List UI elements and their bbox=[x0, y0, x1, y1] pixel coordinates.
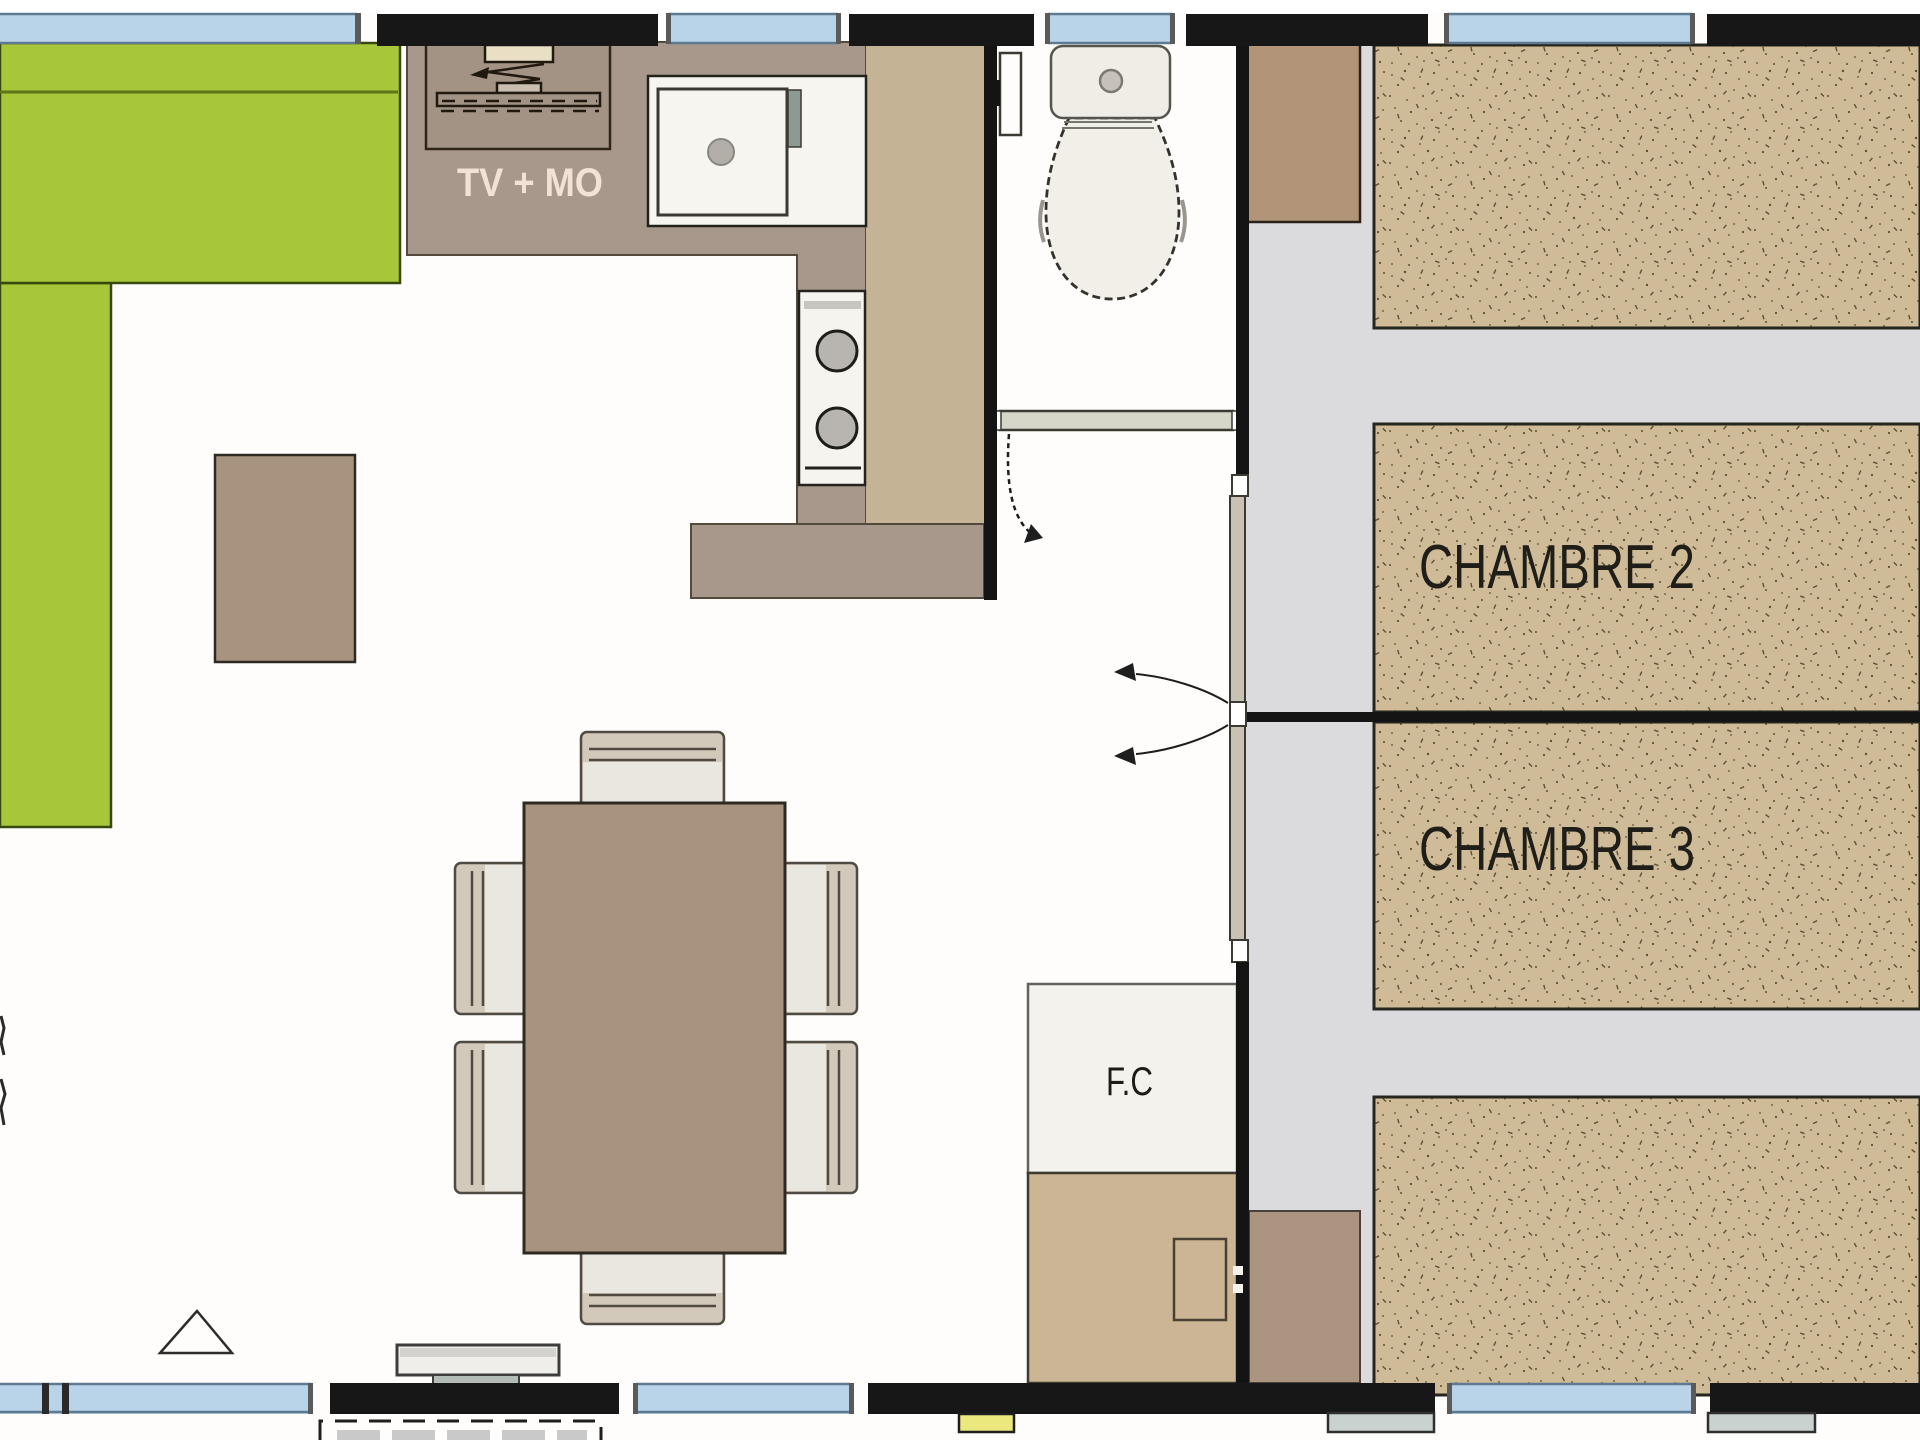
svg-text:TV + MO: TV + MO bbox=[457, 161, 603, 205]
svg-text:F.C: F.C bbox=[1106, 1060, 1153, 1104]
svg-text:CHAMBRE 3: CHAMBRE 3 bbox=[1419, 815, 1695, 884]
svg-text:CHAMBRE 2: CHAMBRE 2 bbox=[1419, 533, 1695, 602]
